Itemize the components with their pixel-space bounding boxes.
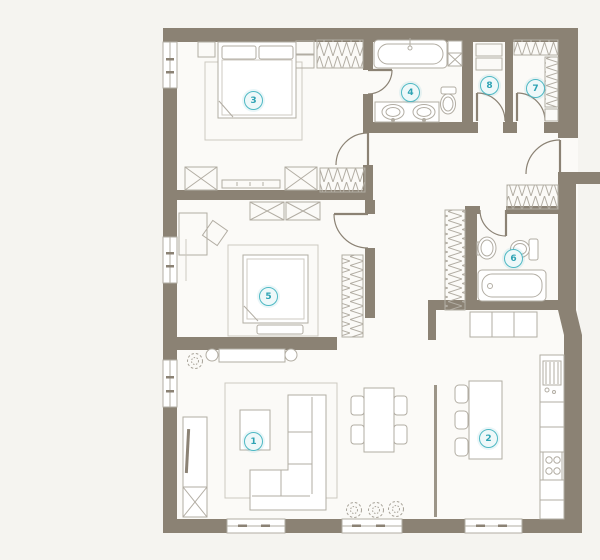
room-badge-bathroom-second: 6 (504, 249, 523, 268)
room-badge-bathroom-main: 4 (401, 83, 420, 102)
room-badge-closet-right: 7 (526, 79, 545, 98)
floor-plan: 1 2 3 4 5 6 7 8 (0, 0, 600, 560)
room-badge-bedroom-second: 5 (259, 287, 278, 306)
room-badge-closet-entry: 8 (480, 76, 499, 95)
floor-plan-drawing (0, 0, 600, 560)
room-badge-bedroom-master: 3 (244, 91, 263, 110)
room-badge-kitchen: 2 (479, 429, 498, 448)
room-badge-living-room: 1 (244, 432, 263, 451)
